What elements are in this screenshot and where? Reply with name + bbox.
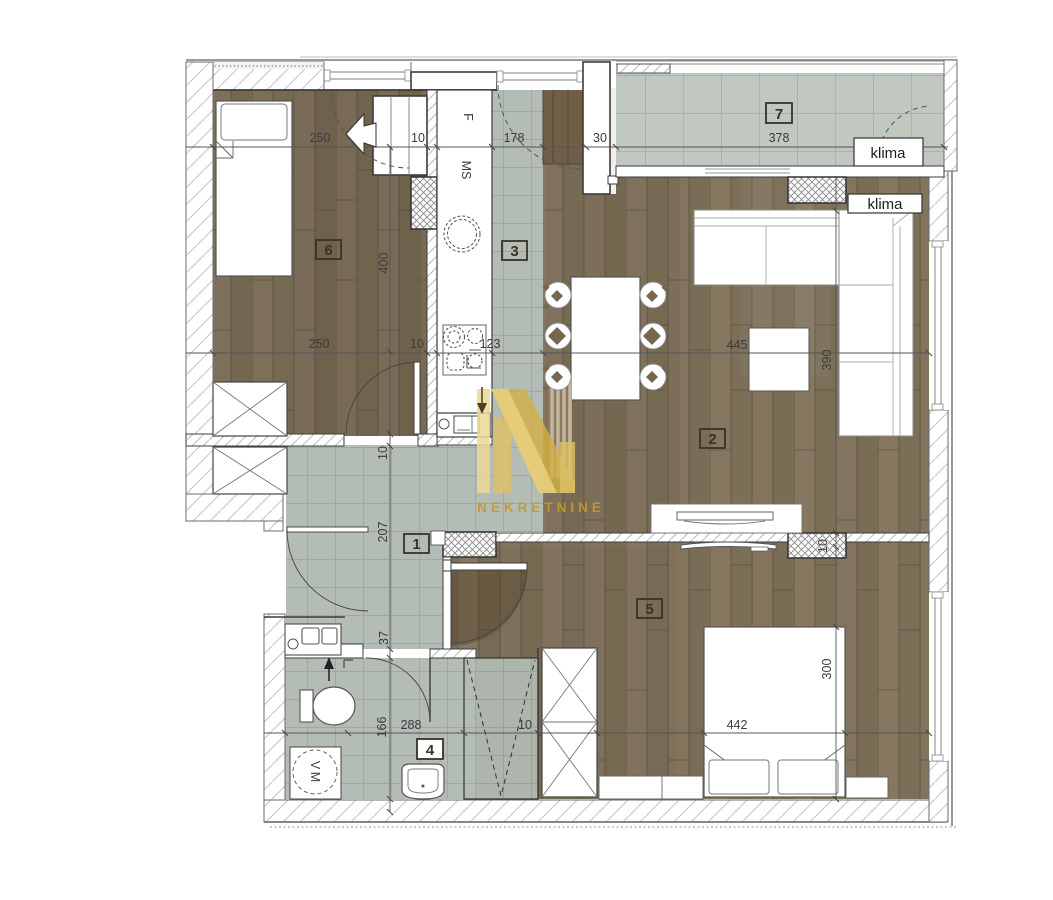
svg-text:7: 7 [775, 106, 783, 123]
svg-text:207: 207 [376, 522, 390, 543]
svg-text:M: M [308, 772, 322, 782]
svg-text:NEKRETNINE: NEKRETNINE [477, 500, 605, 515]
svg-text:445: 445 [727, 338, 748, 352]
svg-text:250: 250 [310, 131, 331, 145]
svg-text:klima: klima [870, 145, 906, 162]
svg-text:V: V [308, 761, 322, 770]
svg-text:166: 166 [375, 717, 389, 738]
svg-text:10: 10 [518, 718, 532, 732]
svg-text:5: 5 [645, 601, 653, 618]
svg-text:10: 10 [376, 446, 390, 460]
svg-text:378: 378 [769, 131, 790, 145]
svg-text:4: 4 [426, 742, 435, 759]
svg-text:klima: klima [867, 196, 903, 213]
svg-text:37: 37 [377, 631, 391, 645]
svg-text:250: 250 [309, 337, 330, 351]
svg-text:MS: MS [459, 161, 473, 180]
svg-text:F: F [461, 113, 475, 121]
svg-text:30: 30 [593, 131, 607, 145]
svg-text:6: 6 [324, 242, 332, 259]
svg-text:123: 123 [480, 337, 501, 351]
svg-text:400: 400 [377, 253, 391, 274]
svg-text:300: 300 [820, 659, 834, 680]
svg-text:178: 178 [504, 131, 525, 145]
svg-text:3: 3 [510, 243, 518, 260]
svg-text:288: 288 [401, 718, 422, 732]
svg-text:1: 1 [412, 536, 420, 553]
svg-text:390: 390 [820, 350, 834, 371]
svg-text:442: 442 [727, 718, 748, 732]
svg-text:2: 2 [708, 431, 716, 448]
svg-text:10: 10 [816, 539, 830, 553]
svg-text:10: 10 [410, 337, 424, 351]
svg-text:10: 10 [411, 131, 425, 145]
